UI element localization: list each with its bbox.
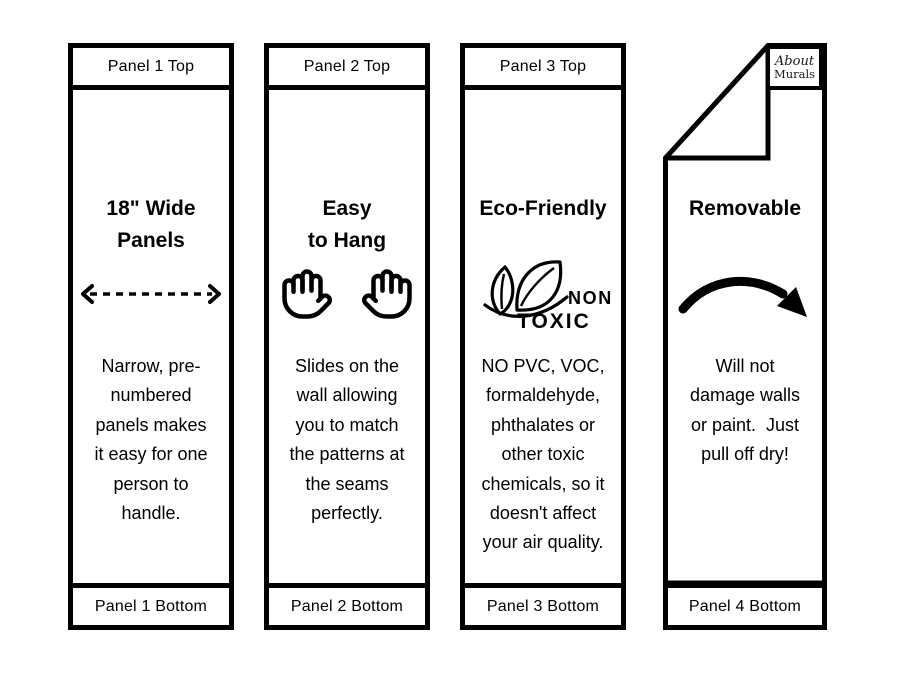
panel-1: Panel 1 Top 18" WidePanels Narrow, pre-n… (68, 43, 234, 630)
raised-hand-left-icon (280, 267, 334, 321)
brand-logo-line2: Murals (774, 68, 815, 80)
panel-4: About Murals Removable Will notdamage wa… (663, 43, 827, 630)
brand-logo: About Murals (766, 45, 823, 90)
panel-2-description: Slides on thewall allowingyou to matchth… (269, 352, 425, 528)
panel-2: Panel 2 Top Easyto Hang (264, 43, 430, 630)
non-toxic-leaves-icon: NON TOXIC (465, 258, 621, 330)
panel-4-title: Removable (663, 193, 827, 225)
panel-1-top-label: Panel 1 Top (68, 43, 234, 90)
panel-3-bottom-label: Panel 3 Bottom (460, 583, 626, 630)
panel-3-title: Eco-Friendly (465, 193, 621, 225)
panel-3-body: Eco-Friendly NON TOXIC NO PVC, VOC,forma… (460, 90, 626, 583)
panel-1-description: Narrow, pre-numberedpanels makesit easy … (73, 352, 229, 528)
panel-3-top-label: Panel 3 Top (460, 43, 626, 90)
panel-4-body: About Murals Removable Will notdamage wa… (663, 43, 827, 583)
raised-hand-right-icon (360, 267, 414, 321)
panel-1-bottom-label: Panel 1 Bottom (68, 583, 234, 630)
panel-3-description: NO PVC, VOC,formaldehyde,phthalates orot… (465, 352, 621, 558)
panel-2-bottom-label: Panel 2 Bottom (264, 583, 430, 630)
curved-arrow-icon (663, 258, 827, 330)
panel-4-bottom-label: Panel 4 Bottom (663, 583, 827, 630)
raised-hands-icon (269, 258, 425, 330)
brand-logo-line1: About (775, 55, 814, 69)
panel-1-title: 18" WidePanels (73, 193, 229, 257)
panel-4-description: Will notdamage wallsor paint. Justpull o… (663, 352, 827, 470)
infographic-canvas: Panel 1 Top 18" WidePanels Narrow, pre-n… (0, 0, 900, 675)
panel-2-top-label: Panel 2 Top (264, 43, 430, 90)
non-toxic-word2: TOXIC (517, 310, 591, 333)
panel-3: Panel 3 Top Eco-Friendly NON TOXIC NO PV… (460, 43, 626, 630)
panel-1-body: 18" WidePanels Narrow, pre-numberedpanel… (68, 90, 234, 583)
width-double-arrow-icon (73, 258, 229, 330)
panel-2-title: Easyto Hang (269, 193, 425, 257)
panel-2-body: Easyto Hang Sl (264, 90, 430, 583)
non-toxic-word1: NON (568, 288, 613, 308)
